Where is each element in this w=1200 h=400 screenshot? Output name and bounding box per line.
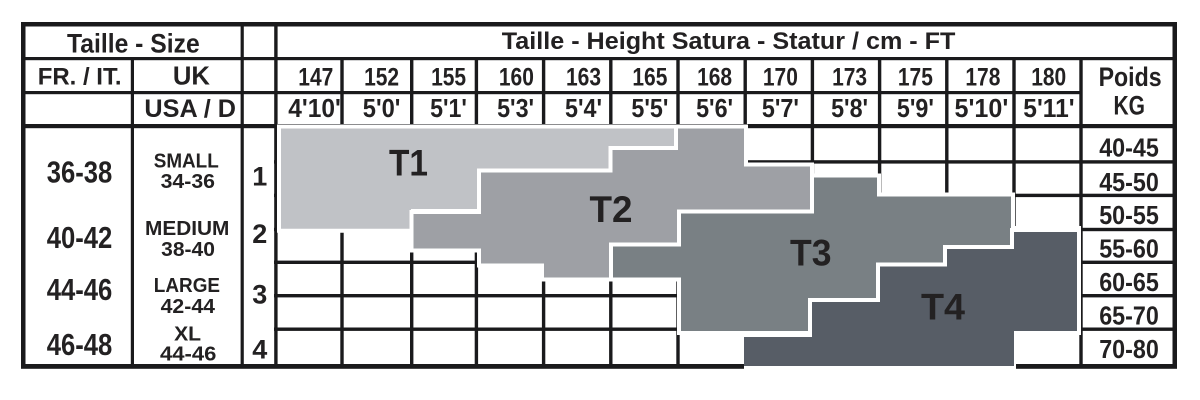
svg-text:T2: T2 bbox=[590, 189, 633, 230]
svg-text:45-50: 45-50 bbox=[1099, 169, 1159, 197]
svg-text:5'3': 5'3' bbox=[497, 93, 534, 123]
svg-text:5'5': 5'5' bbox=[631, 93, 668, 123]
svg-text:Poids: Poids bbox=[1099, 62, 1162, 92]
svg-text:65-70: 65-70 bbox=[1099, 303, 1159, 331]
svg-text:3: 3 bbox=[252, 280, 267, 310]
svg-text:170: 170 bbox=[763, 64, 798, 92]
svg-text:50-55: 50-55 bbox=[1099, 202, 1159, 230]
svg-text:5'6': 5'6' bbox=[696, 93, 733, 123]
svg-text:5'11': 5'11' bbox=[1023, 93, 1074, 123]
svg-text:5'8': 5'8' bbox=[831, 93, 868, 123]
svg-text:MEDIUM: MEDIUM bbox=[145, 218, 229, 240]
svg-text:155: 155 bbox=[431, 64, 466, 92]
svg-text:5'0': 5'0' bbox=[363, 93, 401, 123]
svg-text:T4: T4 bbox=[921, 287, 965, 328]
svg-text:38-40: 38-40 bbox=[161, 239, 215, 261]
svg-text:4'10': 4'10' bbox=[288, 93, 341, 123]
svg-text:147: 147 bbox=[298, 64, 333, 92]
svg-text:Taille - Height Satura - Statu: Taille - Height Satura - Statur / cm - F… bbox=[502, 28, 956, 55]
svg-text:168: 168 bbox=[697, 64, 732, 92]
svg-text:4: 4 bbox=[252, 335, 267, 365]
svg-text:5'7': 5'7' bbox=[762, 93, 799, 123]
svg-text:55-60: 55-60 bbox=[1099, 236, 1159, 264]
svg-text:UK: UK bbox=[173, 63, 211, 91]
svg-text:44-46: 44-46 bbox=[160, 344, 216, 366]
svg-text:175: 175 bbox=[898, 64, 933, 92]
svg-text:USA / D: USA / D bbox=[144, 95, 236, 123]
svg-text:5'9': 5'9' bbox=[897, 93, 934, 123]
svg-text:42-44: 42-44 bbox=[161, 296, 216, 318]
svg-text:T3: T3 bbox=[790, 233, 832, 274]
svg-text:163: 163 bbox=[566, 64, 601, 92]
svg-text:46-48: 46-48 bbox=[47, 327, 113, 362]
svg-text:60-65: 60-65 bbox=[1099, 269, 1159, 297]
svg-text:70-80: 70-80 bbox=[1099, 336, 1159, 364]
svg-text:160: 160 bbox=[499, 64, 534, 92]
svg-text:180: 180 bbox=[1031, 64, 1066, 92]
svg-text:173: 173 bbox=[832, 64, 867, 92]
svg-text:LARGE: LARGE bbox=[154, 275, 220, 297]
svg-text:XL: XL bbox=[174, 324, 201, 346]
svg-text:1: 1 bbox=[252, 162, 267, 192]
svg-text:SMALL: SMALL bbox=[154, 151, 219, 173]
svg-text:34-36: 34-36 bbox=[161, 171, 215, 193]
svg-text:5'1': 5'1' bbox=[430, 93, 467, 123]
svg-text:2: 2 bbox=[252, 219, 267, 249]
svg-text:178: 178 bbox=[965, 64, 1000, 92]
svg-text:36-38: 36-38 bbox=[47, 154, 113, 189]
svg-text:5'10': 5'10' bbox=[955, 93, 1009, 123]
svg-text:40-42: 40-42 bbox=[47, 220, 113, 255]
svg-text:44-46: 44-46 bbox=[47, 272, 113, 307]
svg-text:Taille - Size: Taille - Size bbox=[67, 29, 200, 59]
svg-text:T1: T1 bbox=[389, 143, 428, 184]
svg-text:152: 152 bbox=[364, 64, 399, 92]
svg-text:KG: KG bbox=[1114, 91, 1146, 121]
svg-text:5'4': 5'4' bbox=[565, 93, 602, 123]
svg-text:165: 165 bbox=[632, 64, 667, 92]
svg-text:40-45: 40-45 bbox=[1099, 134, 1159, 162]
svg-text:FR. / IT.: FR. / IT. bbox=[38, 64, 122, 91]
